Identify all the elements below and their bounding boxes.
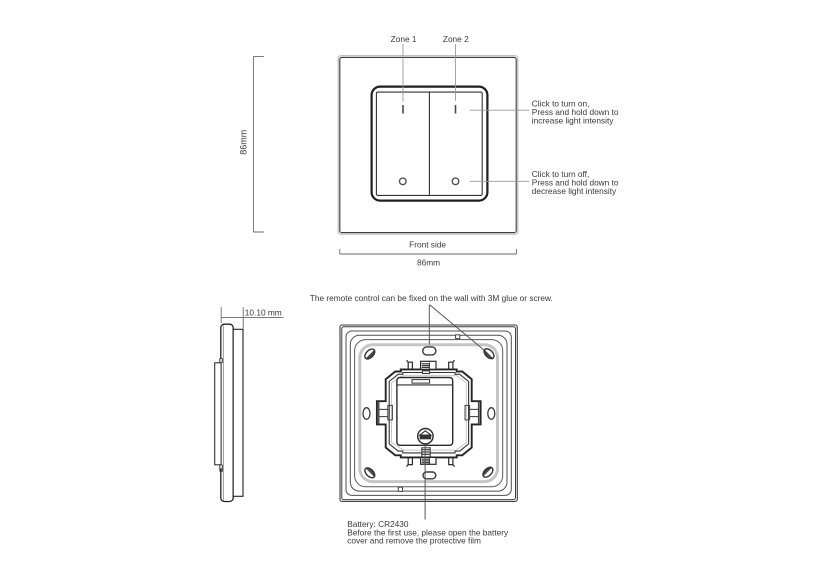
svg-text:Front side: Front side [409, 240, 446, 250]
svg-text:10.10 mm: 10.10 mm [245, 308, 282, 318]
svg-text:Zone 1: Zone 1 [391, 34, 417, 44]
svg-text:The remote control can be fixe: The remote control can be fixed on the w… [310, 293, 553, 303]
svg-text:cover and remove the protectiv: cover and remove the protective film [347, 536, 481, 546]
svg-text:increase light intensity: increase light intensity [532, 115, 614, 125]
svg-text:decrease light intensity: decrease light intensity [532, 186, 617, 196]
svg-text:86mm: 86mm [239, 130, 249, 155]
svg-text:Zone 2: Zone 2 [443, 34, 469, 44]
svg-text:86mm: 86mm [417, 257, 440, 267]
